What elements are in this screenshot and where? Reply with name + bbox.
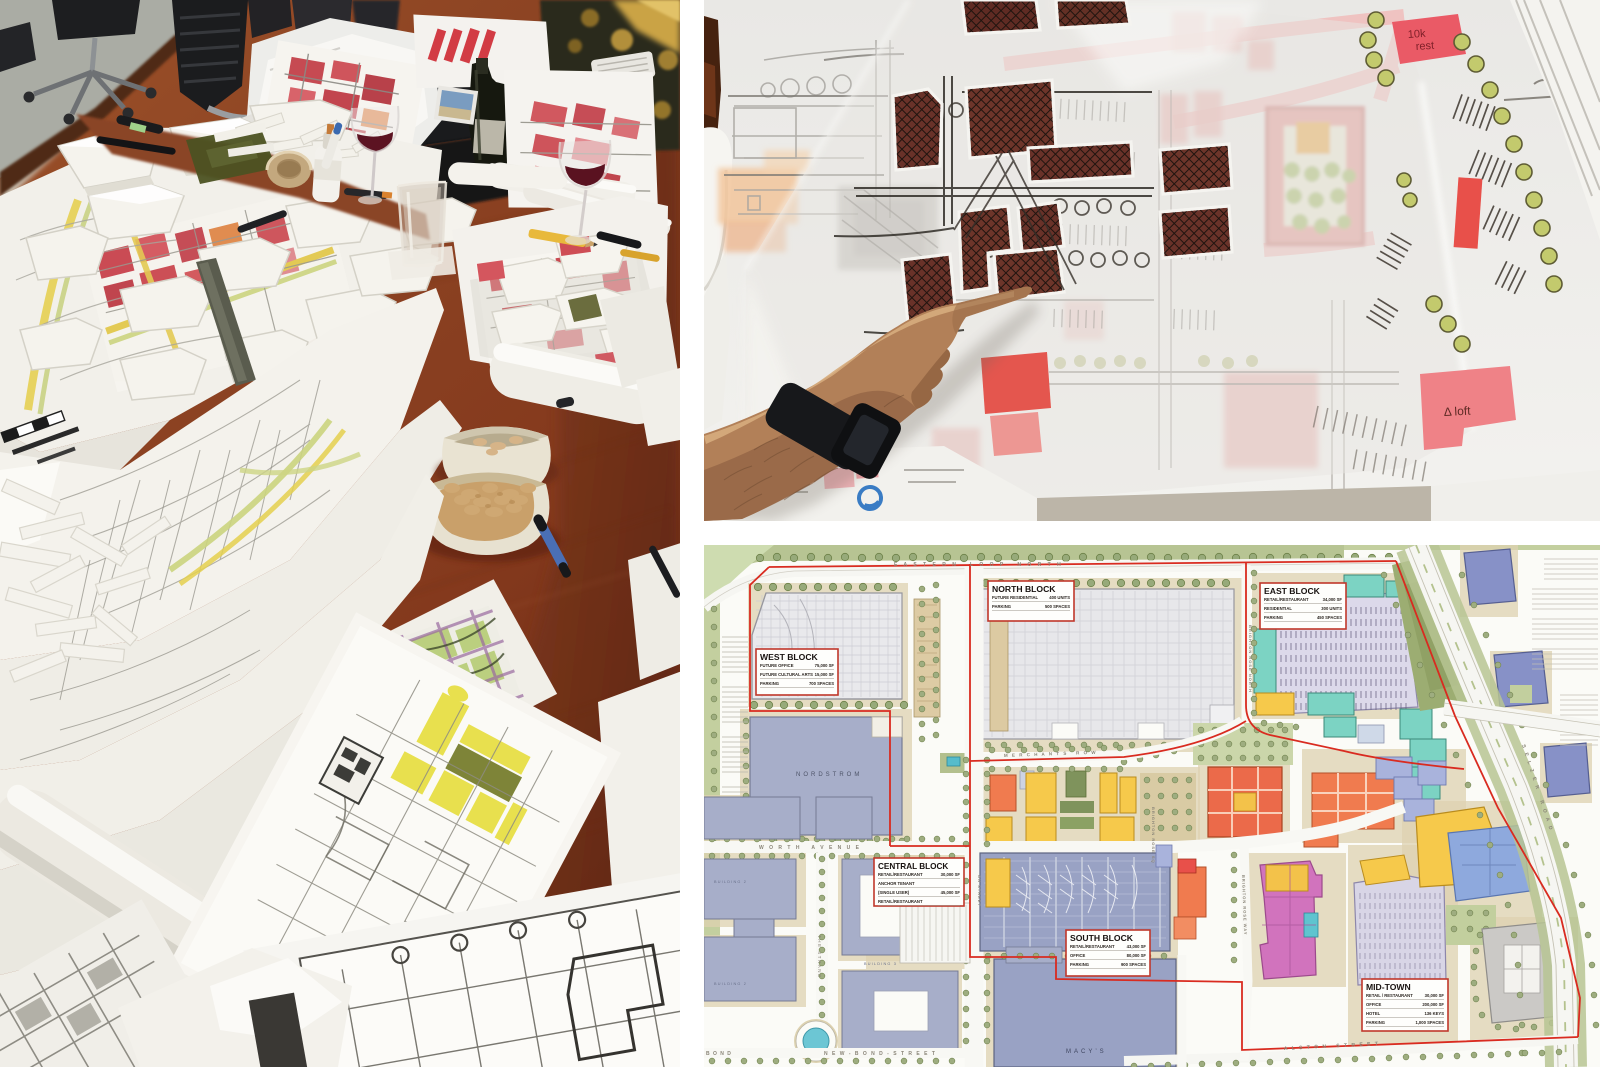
svg-text:B O N D: B O N D xyxy=(706,1051,732,1057)
svg-text:OFFICE: OFFICE xyxy=(1070,953,1086,958)
svg-text:300 UNITS: 300 UNITS xyxy=(1321,606,1342,611)
svg-text:E A S T E R N L O O P N O: E A S T E R N L O O P N O R T H xyxy=(894,562,1063,568)
svg-text:400 UNITS: 400 UNITS xyxy=(1049,595,1070,600)
svg-text:BUILDING 2: BUILDING 2 xyxy=(714,880,747,884)
svg-text:HOTEL: HOTEL xyxy=(1366,1011,1381,1016)
svg-text:Δ loft: Δ loft xyxy=(1443,404,1471,419)
svg-text:NORTH BLOCK: NORTH BLOCK xyxy=(992,584,1056,594)
svg-text:SOUTH BLOCK: SOUTH BLOCK xyxy=(1070,933,1134,943)
svg-text:MACY’S: MACY’S xyxy=(1066,1049,1107,1055)
svg-text:30,000 SF: 30,000 SF xyxy=(941,872,961,877)
svg-text:15,000 SF: 15,000 SF xyxy=(815,672,835,677)
svg-text:PARKING: PARKING xyxy=(1366,1020,1385,1025)
svg-text:45,000 SF: 45,000 SF xyxy=(941,890,961,895)
svg-text:43,000 SF: 43,000 SF xyxy=(1127,944,1147,949)
svg-text:CENTRAL BLOCK: CENTRAL BLOCK xyxy=(878,862,948,871)
svg-text:BUILDING 2: BUILDING 2 xyxy=(714,982,747,986)
svg-text:FUTURE CULTURAL ARTS: FUTURE CULTURAL ARTS xyxy=(760,672,813,677)
svg-text:BRIGHTON ROSE NORTH: BRIGHTON ROSE NORTH xyxy=(1248,625,1253,693)
svg-text:900 SPACES: 900 SPACES xyxy=(1121,962,1146,967)
svg-text:FUTURE OFFICE: FUTURE OFFICE xyxy=(760,663,794,668)
svg-text:PARKING: PARKING xyxy=(1264,615,1283,620)
svg-text:75,000 SF: 75,000 SF xyxy=(815,663,835,668)
svg-text:MID-TOWN: MID-TOWN xyxy=(1366,982,1411,992)
svg-text:PARKING: PARKING xyxy=(992,604,1011,609)
svg-text:THE STRAND: THE STRAND xyxy=(817,935,822,979)
svg-text:RETAIL / RESTAURANT: RETAIL / RESTAURANT xyxy=(1366,993,1413,998)
svg-text:136 KEYS: 136 KEYS xyxy=(1424,1011,1444,1016)
svg-text:10k: 10k xyxy=(1407,28,1426,41)
svg-text:EAST BLOCK: EAST BLOCK xyxy=(1264,586,1321,596)
svg-text:BRIGHTON ROSE SQ: BRIGHTON ROSE SQ xyxy=(1151,807,1156,864)
svg-text:RETAIL/RESTAURANT: RETAIL/RESTAURANT xyxy=(1264,597,1309,602)
svg-text:80,000 SF: 80,000 SF xyxy=(1127,953,1147,958)
svg-text:WEST BLOCK: WEST BLOCK xyxy=(760,652,819,662)
svg-text:NORDSTROM: NORDSTROM xyxy=(796,772,862,778)
svg-text:(SINGLE USER): (SINGLE USER) xyxy=(878,890,910,895)
svg-text:RESIDENTIAL: RESIDENTIAL xyxy=(1264,606,1292,611)
svg-text:450 SPACES: 450 SPACES xyxy=(1317,615,1342,620)
svg-text:BUILDING 3: BUILDING 3 xyxy=(864,962,897,966)
svg-text:W O R T H A V E N U E: W O R T H A V E N U E xyxy=(759,845,861,851)
svg-text:OFFICE: OFFICE xyxy=(1366,1002,1382,1007)
svg-text:FUTURE RESIDENTIAL: FUTURE RESIDENTIAL xyxy=(992,595,1039,600)
svg-text:30,000 SF: 30,000 SF xyxy=(1425,993,1445,998)
svg-text:RETAIL/RESTAURANT: RETAIL/RESTAURANT xyxy=(1070,944,1115,949)
svg-text:ON STREET: ON STREET xyxy=(977,875,982,907)
svg-text:PARKING: PARKING xyxy=(1070,962,1089,967)
svg-text:700 SPACES: 700 SPACES xyxy=(809,681,834,686)
svg-text:1,000 SPACES: 1,000 SPACES xyxy=(1415,1020,1444,1025)
svg-text:200,000 SF: 200,000 SF xyxy=(1422,1002,1444,1007)
svg-text:34,000 SF: 34,000 SF xyxy=(1323,597,1343,602)
svg-text:rest: rest xyxy=(1415,40,1434,53)
svg-text:PARKING: PARKING xyxy=(760,681,779,686)
svg-text:ANCHOR TENANT: ANCHOR TENANT xyxy=(878,881,915,886)
svg-text:500 SPACES: 500 SPACES xyxy=(1045,604,1070,609)
svg-text:RETAIL/RESTAURANT: RETAIL/RESTAURANT xyxy=(878,899,923,904)
svg-text:RETAIL/RESTAURANT: RETAIL/RESTAURANT xyxy=(878,872,923,877)
svg-text:N E W - B O N D - S T R E E T: N E W - B O N D - S T R E E T xyxy=(824,1051,936,1057)
